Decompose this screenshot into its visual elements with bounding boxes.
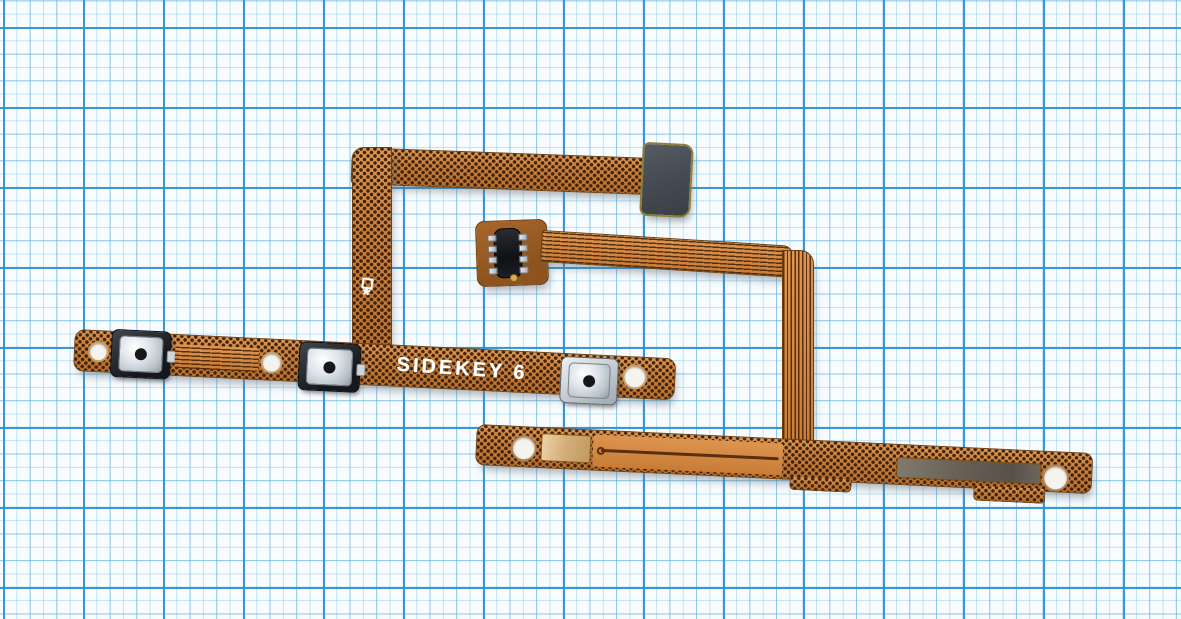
side-switch-component xyxy=(493,228,523,279)
switch-center-dot xyxy=(323,361,336,374)
alignment-hole-2 xyxy=(260,351,283,374)
silkscreen-label: SIDEKEY 6 xyxy=(396,354,528,386)
contact-component-pad xyxy=(475,219,549,287)
volume-down-switch xyxy=(297,341,361,393)
ribbon-vertical-drop xyxy=(782,250,814,450)
component-pin xyxy=(519,255,528,262)
trace-ribbon xyxy=(540,230,794,278)
photo-stage: * SIDEKEY 6 xyxy=(0,0,1181,619)
silkscreen-marking-icon: * xyxy=(359,277,373,303)
solder-pad-shiny xyxy=(540,433,591,463)
bracket-hole-1 xyxy=(510,435,537,462)
solder-pad-tarnished xyxy=(896,457,1042,485)
sidekey-flex-top-run xyxy=(351,147,652,195)
strip-lower-tab-1 xyxy=(789,477,852,493)
marking-star: * xyxy=(361,288,370,303)
gold-test-point xyxy=(510,274,518,282)
component-pin xyxy=(488,246,497,253)
component-pin xyxy=(489,268,498,275)
sidekey-flex-riser: * xyxy=(352,147,392,353)
plain-section xyxy=(592,435,783,476)
signal-trace xyxy=(601,449,779,460)
volume-up-switch xyxy=(110,329,172,380)
component-pin xyxy=(519,266,528,273)
component-pin xyxy=(487,235,496,242)
component-pin xyxy=(519,244,528,251)
power-switch xyxy=(559,356,619,406)
alignment-hole-1 xyxy=(87,341,109,363)
connector-stiffener-pad xyxy=(639,142,694,219)
alignment-hole-3 xyxy=(622,364,648,390)
bracket-hole-2 xyxy=(1041,464,1069,492)
strip-lower-tab-2 xyxy=(973,485,1046,503)
trace-section-1 xyxy=(174,344,259,372)
component-pin xyxy=(488,257,497,264)
component-pin xyxy=(518,233,527,240)
switch-center-dot xyxy=(583,374,596,387)
switch-side-tab xyxy=(356,363,366,375)
